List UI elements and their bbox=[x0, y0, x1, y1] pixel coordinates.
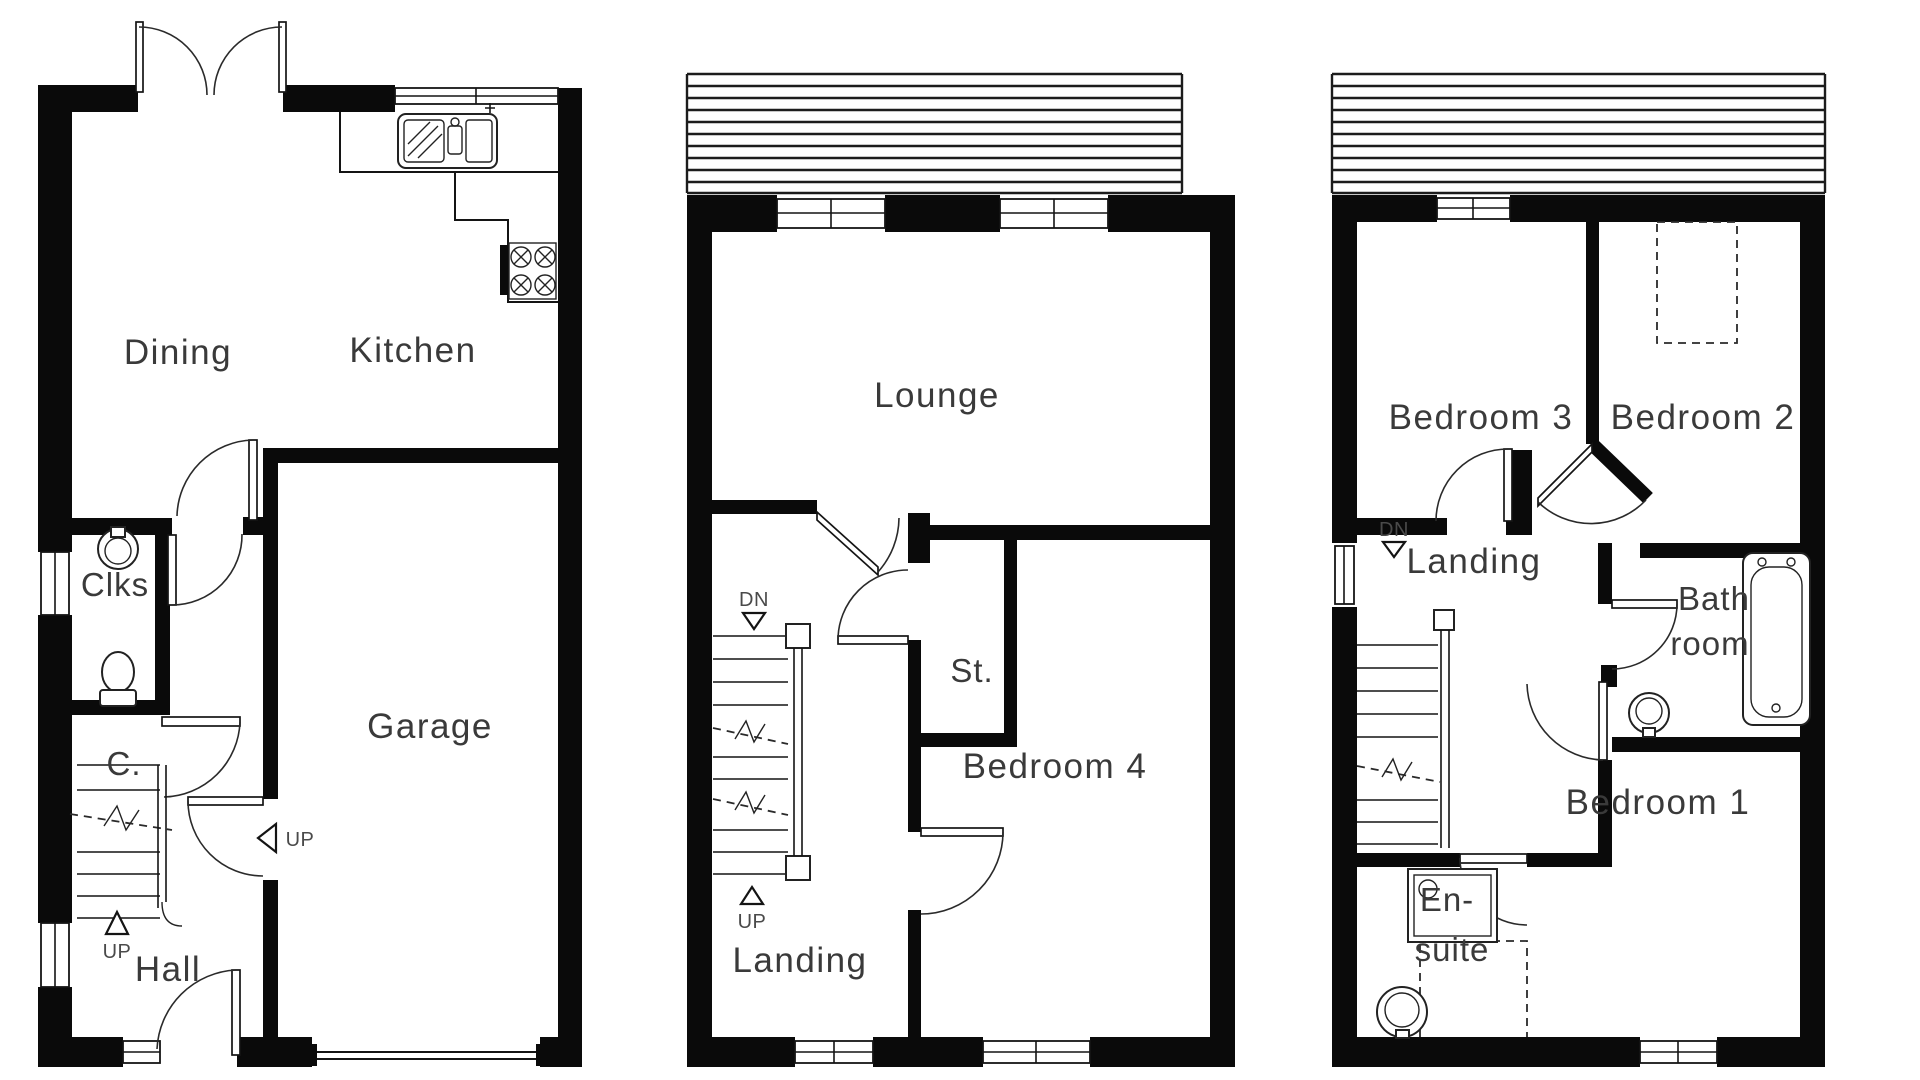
room-label-clks: Clks bbox=[81, 566, 149, 603]
clks-window bbox=[41, 552, 69, 615]
first-floor-walls bbox=[687, 195, 1235, 1067]
lounge-window-left bbox=[777, 199, 885, 228]
room-label-bath-line1: Bath bbox=[1678, 580, 1750, 617]
bedroom4-window bbox=[983, 1041, 1090, 1063]
bathroom-basin bbox=[1629, 693, 1669, 737]
bedroom4-door bbox=[921, 828, 1003, 914]
garage-step-up-label: UP bbox=[286, 829, 315, 851]
stairs-dn-arrow-2 bbox=[1383, 542, 1405, 557]
room-label-bath-line2: room bbox=[1670, 625, 1749, 662]
landing-window bbox=[795, 1041, 873, 1063]
clks-toilet bbox=[100, 652, 136, 706]
garage-door bbox=[309, 1044, 544, 1066]
room-label-ensuite-line2: suite bbox=[1415, 931, 1490, 968]
stairs-up-label: UP bbox=[103, 941, 132, 963]
first-floor-roof-hatch bbox=[687, 74, 1182, 193]
room-label-bedroom1: Bedroom 1 bbox=[1566, 783, 1751, 822]
room-label-dining: Dining bbox=[124, 333, 232, 372]
room-label-landing-2: Landing bbox=[1406, 542, 1541, 581]
room-label-bedroom2: Bedroom 2 bbox=[1611, 398, 1796, 437]
front-sidelight-window bbox=[123, 1041, 160, 1063]
bathroom-door bbox=[1612, 600, 1677, 669]
stairs-up-label-2: UP bbox=[738, 911, 767, 933]
hall-window bbox=[41, 923, 69, 987]
cupboard-door bbox=[162, 717, 240, 797]
stairs-dn-label: DN bbox=[739, 589, 769, 611]
ground-floor-plan: UP UP Dining Kitchen Clks C. Garage Hall bbox=[38, 22, 582, 1067]
bedroom3-window bbox=[1437, 198, 1510, 219]
second-floor-stairs bbox=[1357, 610, 1454, 848]
second-floor-plan: DN Bedroom 3 Bedroom 2 Landing Bath room… bbox=[1332, 74, 1825, 1067]
room-label-cupboard: C. bbox=[107, 745, 142, 782]
garage-step-arrow bbox=[258, 824, 276, 852]
second-floor-roof-hatch bbox=[1332, 74, 1825, 193]
lounge-door bbox=[817, 512, 899, 575]
room-label-bedroom3: Bedroom 3 bbox=[1389, 398, 1574, 437]
bath-tub bbox=[1743, 553, 1810, 725]
room-label-ensuite-line1: En- bbox=[1420, 881, 1474, 918]
store-door bbox=[838, 570, 908, 644]
hall-garage-door bbox=[188, 797, 263, 876]
room-label-garage: Garage bbox=[367, 707, 493, 746]
bedroom1-door bbox=[1527, 682, 1607, 760]
room-label-kitchen: Kitchen bbox=[349, 331, 476, 370]
stairs-up-arrow-2 bbox=[741, 887, 763, 904]
stairs-up-arrow bbox=[106, 912, 128, 934]
kitchen-hob bbox=[500, 243, 556, 299]
room-label-lounge: Lounge bbox=[874, 376, 1000, 415]
stairs-dn-label-2: DN bbox=[1379, 519, 1409, 541]
room-label-hall: Hall bbox=[135, 950, 201, 989]
lounge-window-right bbox=[1000, 199, 1108, 228]
room-label-bedroom4: Bedroom 4 bbox=[963, 747, 1148, 786]
dining-door bbox=[177, 440, 257, 520]
floorplan-sheet: UP UP Dining Kitchen Clks C. Garage Hall bbox=[0, 0, 1920, 1080]
ground-floor-stairs bbox=[70, 765, 182, 926]
kitchen-sink bbox=[398, 103, 497, 168]
landing-side-window bbox=[1335, 546, 1354, 604]
first-floor-plan: DN UP Lounge St. Bedroom 4 Landing bbox=[687, 74, 1235, 1067]
bedroom3-door bbox=[1436, 449, 1512, 521]
french-doors bbox=[136, 22, 286, 95]
clks-door bbox=[168, 534, 242, 605]
room-label-landing-1: Landing bbox=[732, 941, 867, 980]
floorplan-drawing: UP UP Dining Kitchen Clks C. Garage Hall bbox=[0, 0, 1920, 1080]
kitchen-window bbox=[395, 88, 558, 104]
bedroom2-dashed-zone bbox=[1657, 222, 1737, 343]
stairs-dn-arrow bbox=[743, 613, 765, 629]
bedroom1-window bbox=[1640, 1041, 1717, 1063]
first-floor-stairs bbox=[713, 624, 810, 880]
room-label-store: St. bbox=[950, 652, 993, 689]
ensuite-basin bbox=[1377, 987, 1427, 1038]
